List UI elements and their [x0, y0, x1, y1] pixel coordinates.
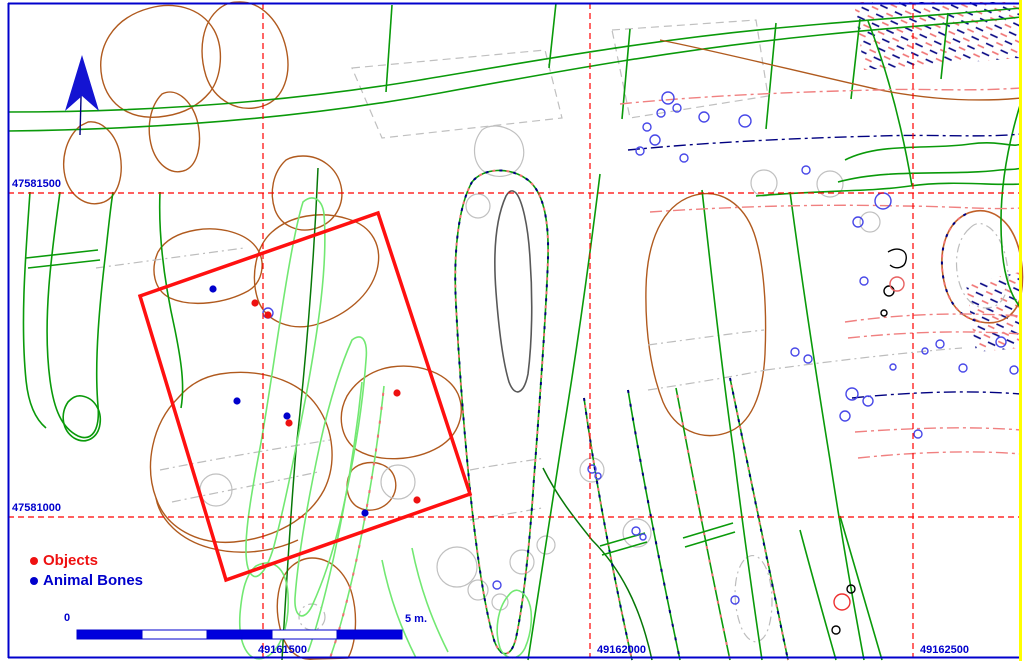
map-drawing-element [628, 134, 1021, 150]
map-drawing-element [860, 277, 868, 285]
map-drawing-element [890, 277, 904, 291]
map-drawing-element [875, 193, 891, 209]
map-drawing-element [854, 2, 1020, 70]
map-drawing-element [643, 123, 651, 131]
map-drawing-element [63, 396, 100, 441]
map-drawing-element [846, 388, 858, 400]
map-drawing-element [620, 88, 1021, 104]
map-drawing-element [510, 550, 534, 574]
map-drawing-element [455, 170, 548, 653]
map-drawing-element [888, 249, 906, 268]
map-drawing-element [455, 170, 548, 653]
map-drawing-element [612, 20, 768, 118]
map-drawing-element [766, 23, 776, 129]
map-drawing-element [254, 215, 378, 327]
object-points [251, 299, 420, 503]
map-drawing-element [1010, 366, 1018, 374]
legend-item-objects: Objects [30, 551, 143, 571]
grid-label-easting-3: 49162500 [920, 644, 969, 656]
scale-bar-segment [207, 630, 272, 639]
map-drawing-element [802, 166, 810, 174]
map-drawing-element [800, 530, 836, 660]
animal-bones-dot-icon [30, 577, 38, 585]
object-point [264, 311, 271, 318]
map-drawing-element [890, 364, 896, 370]
map-drawing-element [202, 2, 288, 108]
map-drawing-element [790, 192, 864, 660]
map-drawing-element [47, 192, 113, 438]
north-arrow-icon [65, 55, 99, 135]
map-drawing-element [437, 547, 477, 587]
animal-bone-point [233, 397, 240, 404]
animal-bone-point [209, 285, 216, 292]
map-drawing-element [28, 260, 100, 268]
map-drawing-element [756, 183, 1021, 196]
legend-item-animal-bones: Animal Bones [30, 571, 143, 591]
map-drawing-element [455, 170, 548, 653]
map-drawing-element [852, 392, 1021, 398]
map-drawing-element [648, 330, 764, 345]
grid-label-easting-2: 49162000 [597, 644, 646, 656]
map-drawing-element [382, 560, 416, 658]
map-drawing-element [858, 452, 1021, 458]
map-drawing-element [65, 55, 99, 111]
grid-label-northing-2: 47581000 [12, 502, 61, 514]
map-drawing-element [853, 217, 863, 227]
map-drawing-element [64, 122, 122, 204]
map-drawing-element [650, 135, 660, 145]
animal-bone-point [283, 412, 290, 419]
animal-bone-point [361, 509, 368, 516]
map-drawing-element [386, 5, 392, 92]
object-point [393, 389, 400, 396]
map-drawing-element [834, 594, 850, 610]
map-drawing-element [497, 590, 531, 658]
map-drawing-element [23, 192, 46, 428]
scale-end-label: 5 m. [405, 613, 427, 625]
map-canvas: 47581500 47581000 49161500 49162000 4916… [0, 0, 1024, 661]
terrain-layer [8, 2, 1023, 660]
map-drawing-element [832, 626, 840, 634]
map-drawing-element [154, 229, 262, 303]
grid-labels: 47581500 47581000 49161500 49162000 4916… [12, 178, 969, 656]
map-drawing-element [884, 286, 894, 296]
map-drawing-element [751, 170, 777, 196]
site-plan: 47581500 47581000 49161500 49162000 4916… [0, 0, 1024, 661]
map-drawing-element [881, 310, 887, 316]
object-point [413, 496, 420, 503]
map-drawing-element [739, 115, 751, 127]
object-point [285, 419, 292, 426]
map-drawing-element [347, 463, 396, 511]
map-drawing-element [959, 364, 967, 372]
map-drawing-element [149, 92, 199, 172]
scale-bar-segment [142, 630, 207, 639]
map-drawing-element [845, 143, 1021, 160]
map-drawing-element [676, 388, 730, 660]
scale-bar-segment [337, 630, 402, 639]
map-drawing-element [26, 250, 98, 258]
objects-dot-icon [30, 557, 38, 565]
map-drawing-element [156, 498, 298, 552]
map-drawing-element [584, 398, 632, 660]
map-drawing-element [493, 581, 501, 589]
scale-zero-label: 0 [64, 612, 70, 624]
map-drawing-element [855, 428, 1021, 432]
map-drawing-element [662, 92, 674, 104]
legend-label-objects: Objects [43, 552, 98, 570]
map-drawing-element [766, 348, 962, 370]
map-drawing-element [640, 534, 646, 540]
grid-label-easting-1: 49161500 [258, 644, 307, 656]
object-point [251, 299, 258, 306]
legend: Objects Animal Bones [30, 551, 143, 591]
grid-label-northing-1: 47581500 [12, 178, 61, 190]
map-drawing-element [699, 112, 709, 122]
map-drawing-element [96, 248, 244, 268]
map-drawing-element [648, 370, 766, 390]
map-drawing-element [475, 126, 524, 176]
map-drawing-element [412, 548, 448, 652]
map-drawing-element [914, 430, 922, 438]
map-drawing-element [838, 168, 1021, 182]
map-drawing-element [936, 340, 944, 348]
map-drawing-element [791, 348, 799, 356]
map-drawing-element [840, 516, 882, 660]
map-drawing-element [804, 355, 812, 363]
map-drawing-element [381, 465, 415, 499]
map-drawing-element [685, 532, 735, 547]
map-drawing-element [632, 527, 640, 535]
map-drawing-element [584, 398, 632, 660]
map-drawing-element [492, 594, 508, 610]
scale-bar-segment [272, 630, 337, 639]
map-drawing-element [200, 474, 232, 506]
scale-bar-segment [77, 630, 142, 639]
map-drawing-element [495, 191, 532, 392]
scale-bar [77, 630, 402, 639]
map-drawing-element [543, 468, 652, 660]
map-drawing-element [863, 396, 873, 406]
map-drawing-element [622, 29, 630, 119]
map-drawing-element [840, 411, 850, 421]
map-drawing-element [352, 50, 562, 138]
map-drawing-element [966, 272, 1020, 352]
map-drawing-element [680, 154, 688, 162]
map-drawing-element [683, 523, 733, 538]
map-drawing-element [702, 190, 762, 660]
map-drawing-element [628, 390, 680, 660]
legend-label-animal-bones: Animal Bones [43, 572, 143, 590]
survey-grid [8, 3, 1021, 658]
map-drawing-element [466, 194, 490, 218]
map-drawing-element [650, 205, 1021, 212]
map-drawing-element [584, 398, 632, 660]
map-frame [8, 0, 1021, 661]
map-drawing-element [636, 147, 644, 155]
